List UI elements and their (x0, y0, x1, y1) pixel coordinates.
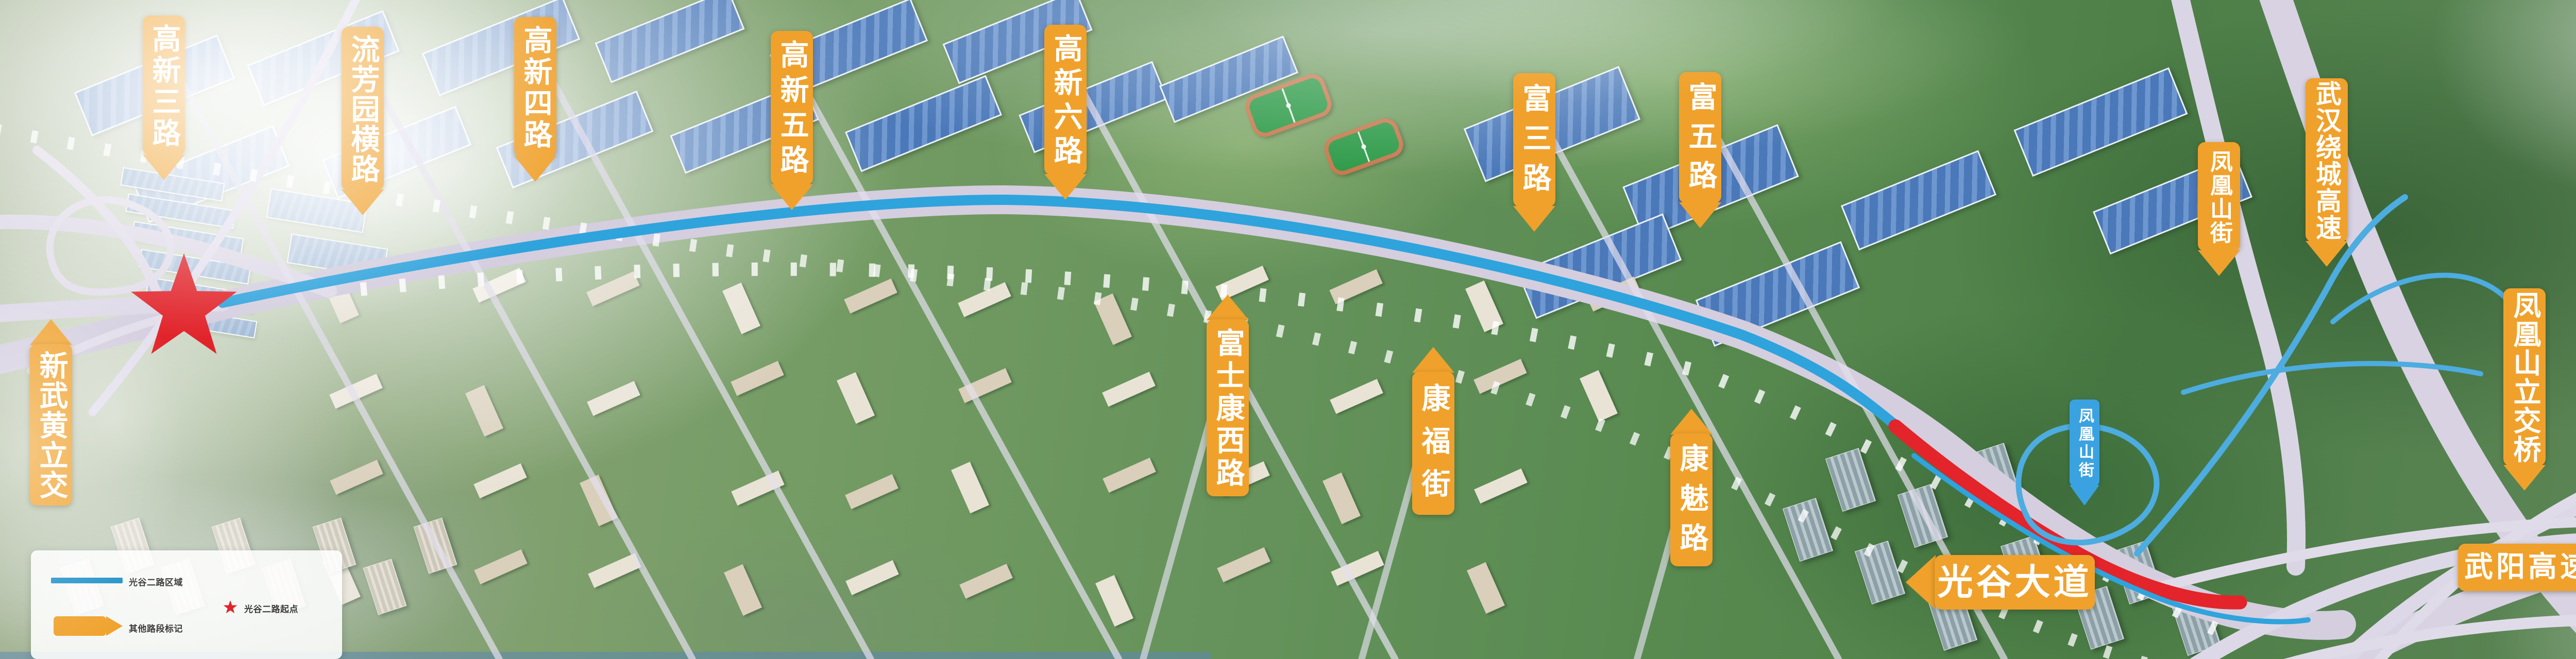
road-label-text: 高新三路 (143, 15, 185, 155)
road-label-liufangyuan-transverse-road: 流芳园横路 (342, 27, 384, 215)
road-label-text: 武汉绕城高速 (2306, 78, 2348, 242)
label-pointer-tip (2070, 485, 2099, 506)
legend-panel: 光谷二路区域 光谷二路起点 其他路段标记 (31, 550, 342, 659)
label-pointer-tip (2306, 241, 2348, 267)
road-label-fu-5-road: 富五路 (1679, 72, 1721, 228)
road-label-wuhan-ring-expressway: 武汉绕城高速 (2306, 78, 2348, 267)
legend-orange-arrow-swatch (54, 616, 106, 636)
road-label-text: 高新四路 (514, 17, 556, 157)
label-pointer-tip (342, 189, 384, 215)
legend-star-icon (223, 600, 238, 615)
road-label-text: 新武黄立交 (30, 344, 72, 506)
road-label-text: 流芳园横路 (342, 27, 384, 190)
road-label-kangfu-street: 康福街 (1412, 347, 1454, 515)
road-label-text: 富士康西路 (1207, 319, 1249, 496)
label-pointer-tip (1412, 347, 1454, 373)
road-label-gaoxin-4-road: 高新四路 (514, 17, 556, 182)
label-pointer-tip (771, 184, 813, 210)
legend-item-label: 其他路段标记 (129, 621, 183, 634)
legend-item-label: 光谷二路起点 (244, 602, 298, 615)
road-label-gaoxin-5-road: 高新五路 (771, 31, 813, 210)
road-label-fenghuangshan-street: 凤凰山街 (2198, 142, 2240, 276)
road-label-text: 富五路 (1679, 72, 1721, 203)
legend-orange-arrow-tip (106, 616, 123, 636)
label-pointer-tip (30, 319, 72, 345)
aerial-map-stage: 高新三路流芳园横路高新四路高新五路高新六路富三路富五路凤凰山街武汉绕城高速新武黄… (0, 0, 2576, 659)
road-label-fu-3-road: 富三路 (1513, 73, 1555, 232)
road-label-text: 康福街 (1412, 372, 1454, 515)
road-label-gaoxin-3-road: 高新三路 (143, 15, 185, 180)
road-label-gaoxin-6-road: 高新六路 (1044, 25, 1087, 200)
label-pointer-tip (1670, 409, 1713, 435)
label-pointer-tip (1044, 174, 1087, 200)
road-label-xinwuhuang-interchange: 新武黄立交 (30, 319, 72, 506)
road-label-text: 富三路 (1513, 73, 1555, 207)
label-pointer-tip (2503, 465, 2546, 491)
label-pointer-tip (1207, 294, 1249, 320)
label-pointer-tip (1906, 555, 1936, 610)
road-label-text: 光谷大道 (1935, 555, 2095, 610)
label-pointer-tip (1679, 202, 1721, 228)
road-label-kangmei-road: 康魅路 (1670, 409, 1713, 566)
road-label-fenghuangshan-interchange-bridge: 凤凰山立交桥 (2503, 288, 2546, 491)
road-label-text: 康魅路 (1670, 433, 1713, 566)
legend-item-label: 光谷二路区域 (129, 575, 183, 588)
label-pointer-tip (514, 156, 556, 182)
label-pointer-tip (143, 154, 185, 180)
road-label-text: 武阳高速方向 (2458, 544, 2576, 591)
road-label-text: 高新六路 (1044, 25, 1087, 175)
road-label-fenghuangshan-street-callout: 凤凰山街 (2070, 400, 2099, 506)
road-label-guanggu-avenue: 光谷大道 (1906, 555, 2095, 610)
road-labels-layer: 高新三路流芳园横路高新四路高新五路高新六路富三路富五路凤凰山街武汉绕城高速新武黄… (0, 0, 2576, 659)
road-label-wuyang-expressway-direction: 武阳高速方向 (2458, 544, 2576, 591)
road-label-foxconn-west-road: 富士康西路 (1207, 294, 1249, 496)
road-label-text: 凤凰山立交桥 (2503, 288, 2546, 466)
road-label-text: 凤凰山街 (2070, 400, 2099, 486)
label-pointer-tip (2198, 250, 2240, 276)
road-label-text: 高新五路 (771, 31, 813, 185)
legend-blue-line-swatch (51, 578, 123, 583)
label-pointer-tip (1513, 206, 1555, 232)
road-label-text: 凤凰山街 (2198, 142, 2240, 251)
